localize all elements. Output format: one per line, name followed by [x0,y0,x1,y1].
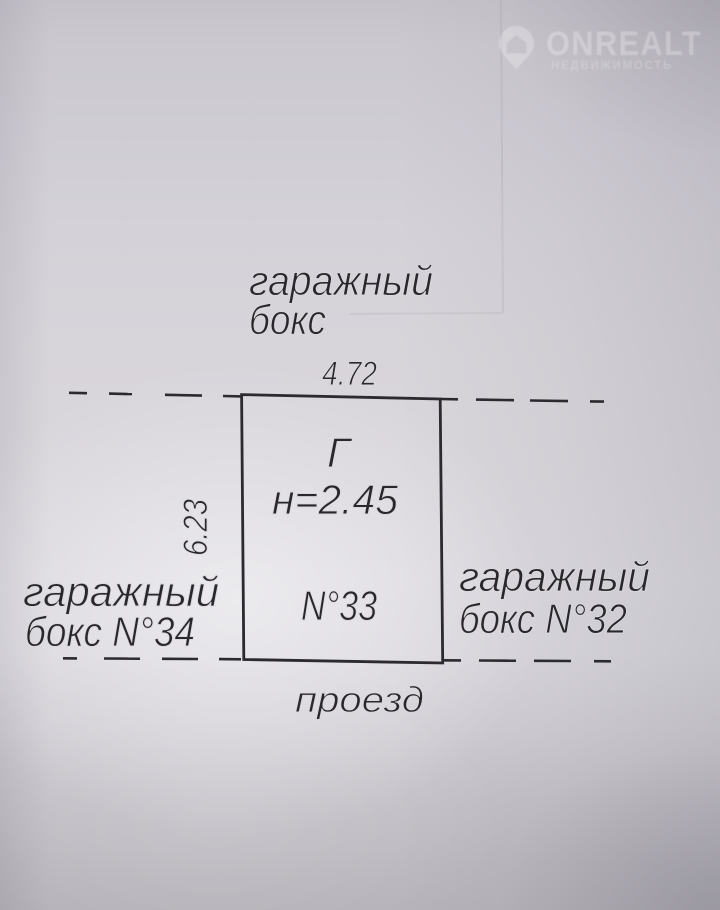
svg-text:бокс N°32: бокс N°32 [459,595,627,642]
svg-text:н=2.45: н=2.45 [272,476,399,523]
svg-text:Г: Г [327,429,353,476]
svg-text:гаражный: гаражный [459,553,650,600]
svg-text:4.72: 4.72 [322,355,377,393]
svg-text:N°33: N°33 [301,582,377,629]
svg-text:проезд: проезд [295,679,424,720]
svg-text:6.23: 6.23 [177,499,215,556]
svg-text:бокс: бокс [249,296,326,343]
svg-text:НЕДВИЖИМОСТЬ: НЕДВИЖИМОСТЬ [551,58,673,72]
svg-text:бокс N°34: бокс N°34 [25,608,195,655]
